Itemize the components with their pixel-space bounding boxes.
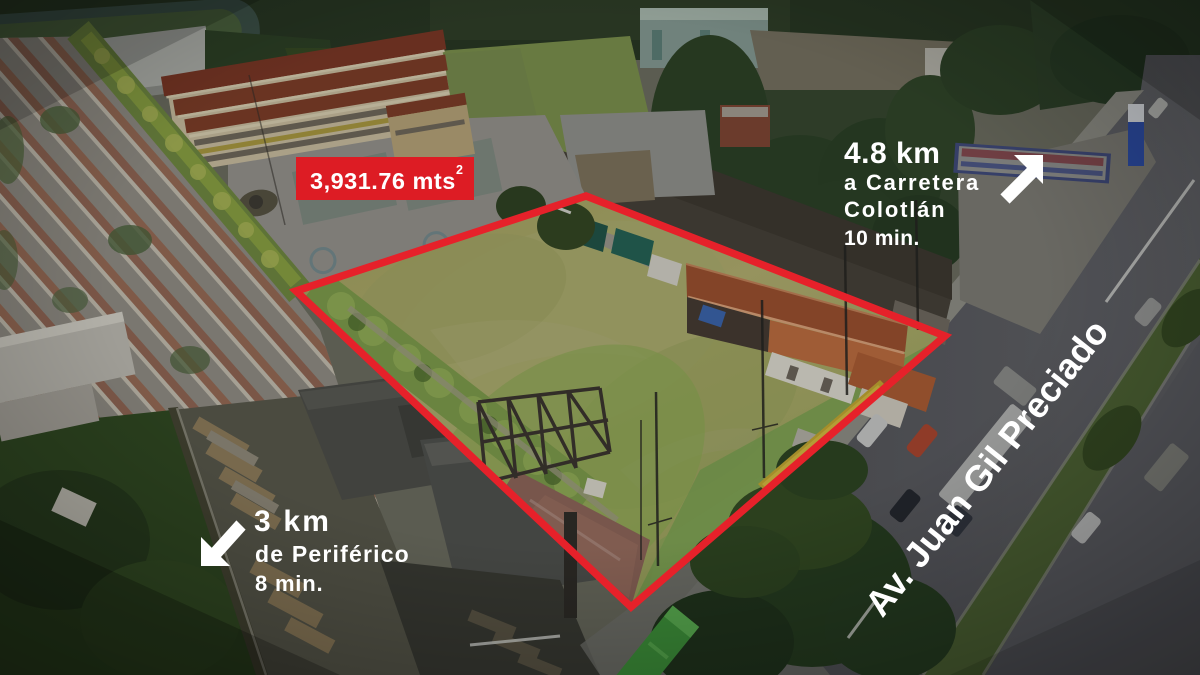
svg-text:de Periférico: de Periférico — [255, 541, 410, 567]
svg-text:8 min.: 8 min. — [255, 571, 323, 596]
svg-text:a Carretera: a Carretera — [844, 170, 980, 195]
svg-text:4.8 km: 4.8 km — [844, 137, 940, 170]
svg-text:2: 2 — [456, 163, 463, 177]
svg-text:3 km: 3 km — [254, 505, 331, 538]
svg-text:10 min.: 10 min. — [844, 227, 920, 250]
svg-text:3,931.76 mts: 3,931.76 mts — [310, 168, 456, 194]
svg-text:Colotlán: Colotlán — [844, 197, 946, 222]
